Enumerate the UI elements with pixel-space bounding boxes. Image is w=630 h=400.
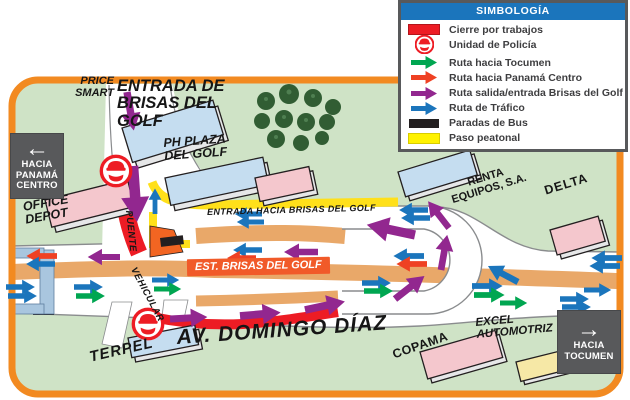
purple-route-arrow-icon bbox=[406, 87, 442, 100]
sign-hacia-tocumen: → HACIA TOCUMEN bbox=[557, 310, 621, 374]
traffic-map-infographic: PRICE SMART ENTRADA DE BRISAS DEL GOLF P… bbox=[0, 0, 630, 400]
green-route-arrow-icon bbox=[406, 56, 442, 69]
legend-item: Ruta hacia Panamá Centro bbox=[406, 70, 620, 85]
blue-route-arrow-icon bbox=[406, 102, 442, 115]
red-route-arrow-icon bbox=[406, 71, 442, 84]
bus-stop-swatch-icon bbox=[406, 119, 442, 128]
legend-item: Unidad de Policía bbox=[406, 37, 620, 52]
legend-item: Paradas de Bus bbox=[406, 116, 620, 131]
label-price-smart: PRICE SMART bbox=[64, 76, 114, 99]
legend-item: Ruta de Tráfico bbox=[406, 101, 620, 116]
police-badge-icon bbox=[406, 35, 442, 54]
crosswalk-swatch-icon bbox=[406, 133, 442, 144]
police-unit-marker bbox=[101, 156, 130, 185]
right-arrow-icon: → bbox=[577, 321, 601, 339]
left-arrow-icon: ← bbox=[25, 140, 49, 158]
legend-item: Paso peatonal bbox=[406, 131, 620, 146]
label-entrada-brisas: ENTRADA DE BRISAS DEL GOLF bbox=[117, 78, 225, 130]
sign-hacia-panama-centro: ← HACIA PANAMÁ CENTRO bbox=[10, 133, 64, 199]
closure-swatch-icon bbox=[406, 24, 442, 35]
legend-item: Ruta hacia Tocumen bbox=[406, 55, 620, 70]
label-est-brisas-badge: EST. BRISAS DEL GOLF bbox=[187, 257, 330, 276]
label-ph-plaza: PH PLAZA DEL GOLF bbox=[163, 133, 228, 164]
legend-panel: SIMBOLOGÍA Cierre por trabajos Unidad de… bbox=[398, 0, 628, 152]
legend-item: Ruta salida/entrada Brisas del Golf bbox=[406, 86, 620, 101]
legend-title: SIMBOLOGÍA bbox=[401, 3, 625, 20]
